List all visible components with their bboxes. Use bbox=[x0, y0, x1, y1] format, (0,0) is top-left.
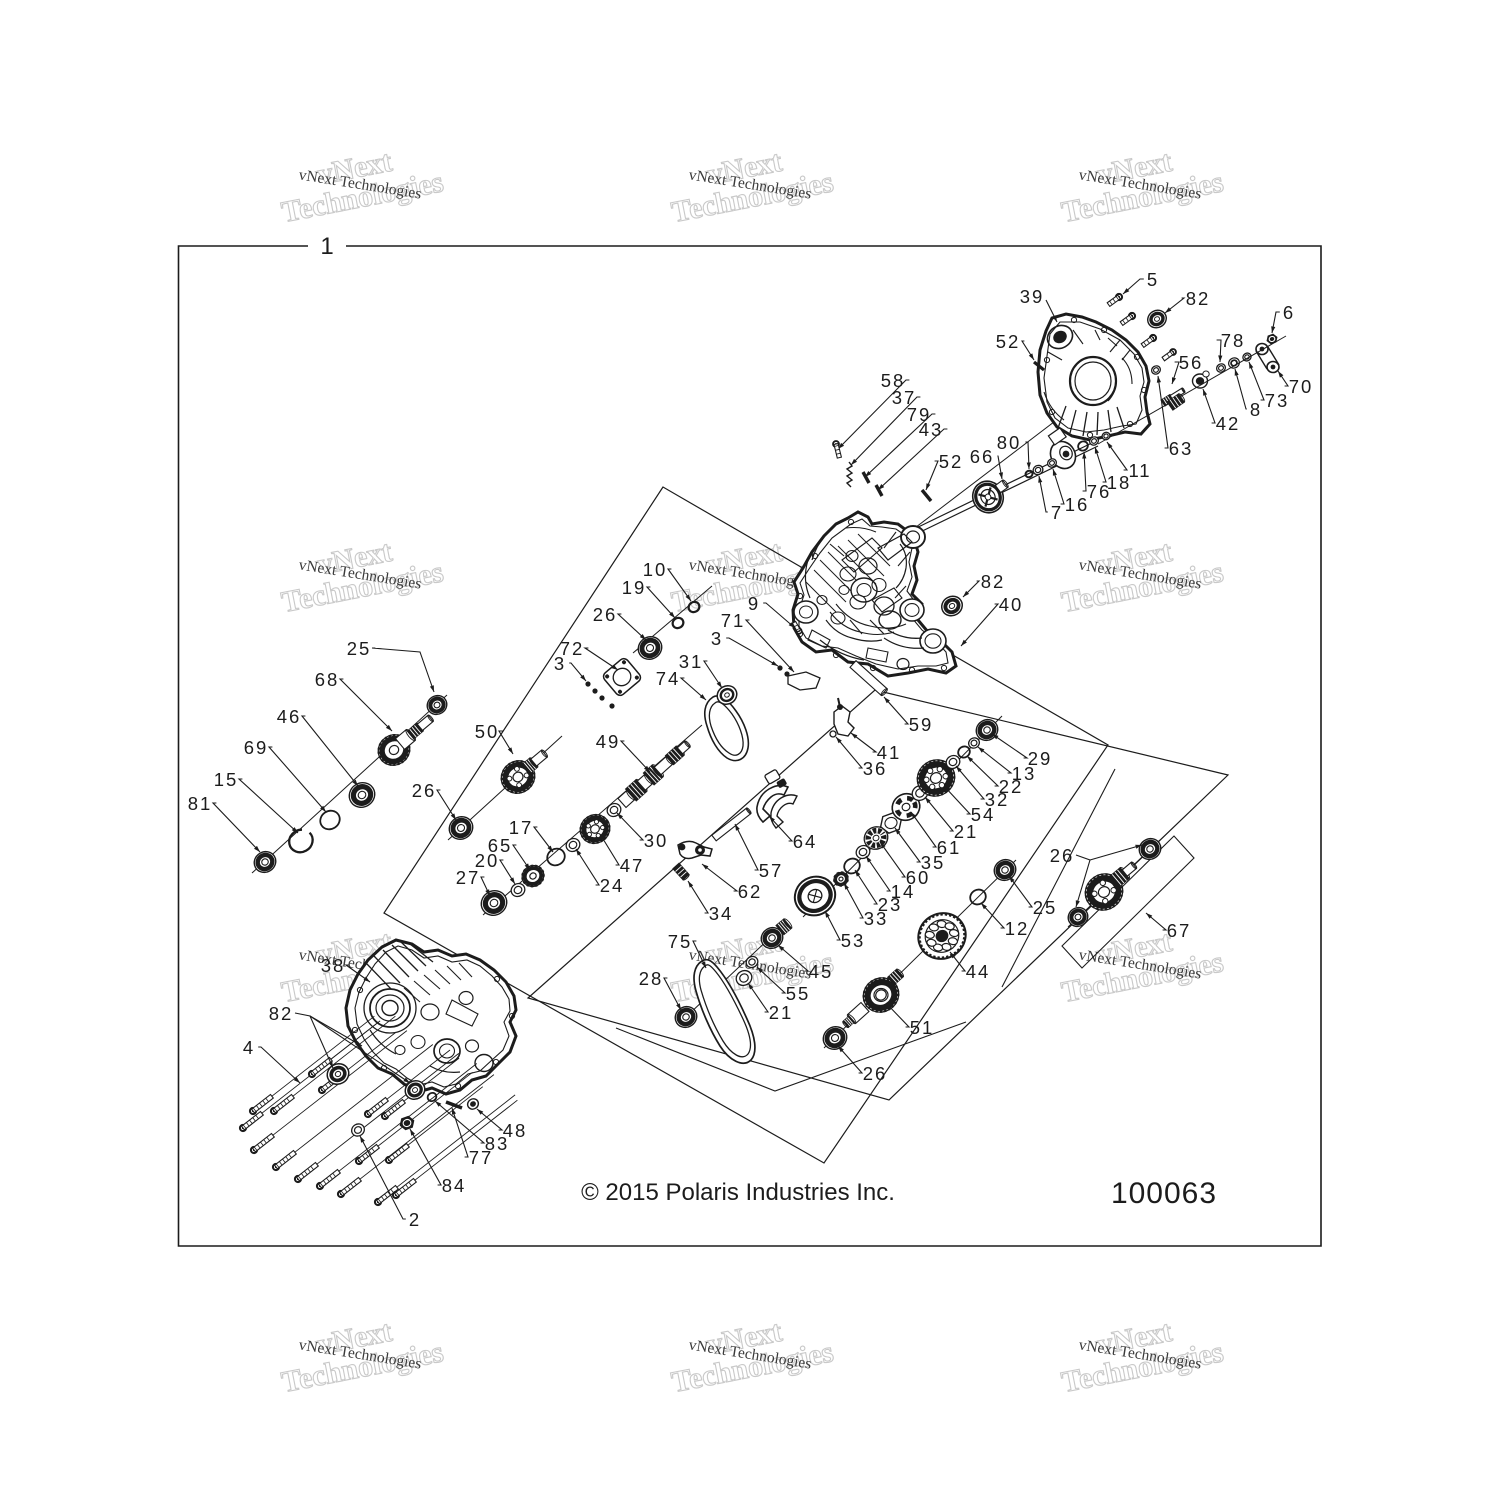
svg-text:68: 68 bbox=[315, 669, 339, 690]
svg-text:45: 45 bbox=[809, 961, 833, 982]
svg-text:9: 9 bbox=[748, 593, 760, 614]
svg-text:80: 80 bbox=[997, 432, 1021, 453]
svg-text:52: 52 bbox=[939, 451, 963, 472]
svg-text:19: 19 bbox=[622, 577, 646, 598]
svg-text:16: 16 bbox=[1065, 494, 1089, 515]
svg-text:38: 38 bbox=[321, 955, 345, 976]
svg-text:46: 46 bbox=[277, 706, 301, 727]
svg-text:17: 17 bbox=[509, 817, 533, 838]
svg-text:39: 39 bbox=[1020, 286, 1044, 307]
svg-text:1: 1 bbox=[320, 233, 333, 260]
svg-text:26: 26 bbox=[593, 604, 617, 625]
svg-text:81: 81 bbox=[188, 793, 212, 814]
svg-text:66: 66 bbox=[970, 446, 994, 467]
svg-text:59: 59 bbox=[909, 714, 933, 735]
svg-text:78: 78 bbox=[1221, 330, 1245, 351]
svg-text:50: 50 bbox=[475, 721, 499, 742]
svg-text:47: 47 bbox=[620, 855, 644, 876]
svg-text:42: 42 bbox=[1216, 413, 1240, 434]
svg-text:51: 51 bbox=[910, 1017, 934, 1038]
svg-text:77: 77 bbox=[469, 1147, 493, 1168]
svg-text:11: 11 bbox=[1128, 460, 1151, 481]
svg-text:44: 44 bbox=[966, 961, 990, 982]
svg-text:40: 40 bbox=[999, 594, 1023, 615]
svg-text:53: 53 bbox=[841, 930, 865, 951]
svg-text:63: 63 bbox=[1169, 438, 1193, 459]
svg-text:84: 84 bbox=[442, 1175, 466, 1196]
svg-text:12: 12 bbox=[1005, 918, 1029, 939]
svg-text:43: 43 bbox=[919, 419, 943, 440]
svg-text:73: 73 bbox=[1265, 390, 1289, 411]
svg-text:3: 3 bbox=[711, 628, 723, 649]
svg-text:56: 56 bbox=[1179, 352, 1203, 373]
svg-text:26: 26 bbox=[863, 1063, 887, 1084]
svg-text:70: 70 bbox=[1289, 376, 1313, 397]
svg-text:10: 10 bbox=[643, 559, 667, 580]
svg-text:30: 30 bbox=[644, 830, 668, 851]
svg-text:2: 2 bbox=[409, 1209, 421, 1230]
svg-text:3: 3 bbox=[554, 653, 566, 674]
svg-text:28: 28 bbox=[639, 968, 663, 989]
svg-text:8: 8 bbox=[1250, 399, 1262, 420]
svg-text:6: 6 bbox=[1283, 302, 1295, 323]
svg-text:55: 55 bbox=[786, 983, 810, 1004]
svg-text:27: 27 bbox=[456, 867, 480, 888]
svg-text:64: 64 bbox=[793, 831, 817, 852]
svg-text:5: 5 bbox=[1147, 269, 1159, 290]
svg-text:49: 49 bbox=[596, 731, 620, 752]
svg-text:21: 21 bbox=[769, 1002, 793, 1023]
svg-text:57: 57 bbox=[759, 860, 783, 881]
svg-text:33: 33 bbox=[864, 908, 888, 929]
svg-text:100063: 100063 bbox=[1111, 1177, 1217, 1210]
svg-text:67: 67 bbox=[1167, 920, 1191, 941]
svg-text:36: 36 bbox=[863, 758, 887, 779]
svg-text:62: 62 bbox=[738, 881, 762, 902]
svg-text:82: 82 bbox=[269, 1003, 293, 1024]
svg-text:52: 52 bbox=[996, 331, 1020, 352]
svg-text:74: 74 bbox=[656, 668, 680, 689]
svg-text:© 2015 Polaris Industries Inc.: © 2015 Polaris Industries Inc. bbox=[581, 1179, 895, 1206]
svg-text:82: 82 bbox=[981, 571, 1005, 592]
svg-text:7: 7 bbox=[1051, 502, 1063, 523]
svg-text:71: 71 bbox=[721, 610, 745, 631]
svg-text:31: 31 bbox=[679, 651, 703, 672]
svg-text:25: 25 bbox=[1033, 897, 1057, 918]
svg-text:69: 69 bbox=[244, 737, 268, 758]
svg-text:24: 24 bbox=[600, 875, 624, 896]
svg-text:82: 82 bbox=[1186, 288, 1210, 309]
svg-text:15: 15 bbox=[214, 769, 238, 790]
svg-text:4: 4 bbox=[243, 1037, 255, 1058]
svg-text:75: 75 bbox=[668, 931, 692, 952]
svg-text:26: 26 bbox=[1050, 845, 1074, 866]
svg-text:34: 34 bbox=[709, 903, 733, 924]
svg-text:25: 25 bbox=[347, 638, 371, 659]
svg-text:26: 26 bbox=[412, 780, 436, 801]
